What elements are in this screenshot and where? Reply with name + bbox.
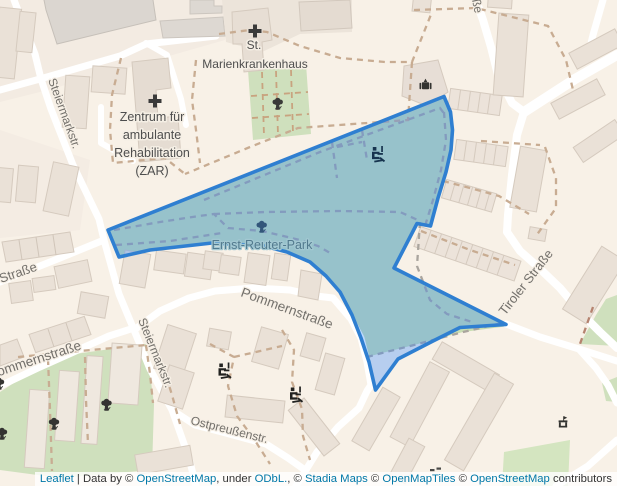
svg-text:Rehabilitation: Rehabilitation: [114, 146, 190, 160]
svg-text:St.: St.: [247, 38, 262, 52]
svg-text:Ernst-Reuter-Park: Ernst-Reuter-Park: [212, 238, 313, 252]
svg-text:Marienkrankenhaus: Marienkrankenhaus: [202, 57, 307, 71]
svg-text:ambulante: ambulante: [123, 128, 181, 142]
svg-text:Zentrum für: Zentrum für: [120, 110, 185, 124]
svg-text:(ZAR): (ZAR): [135, 164, 168, 178]
